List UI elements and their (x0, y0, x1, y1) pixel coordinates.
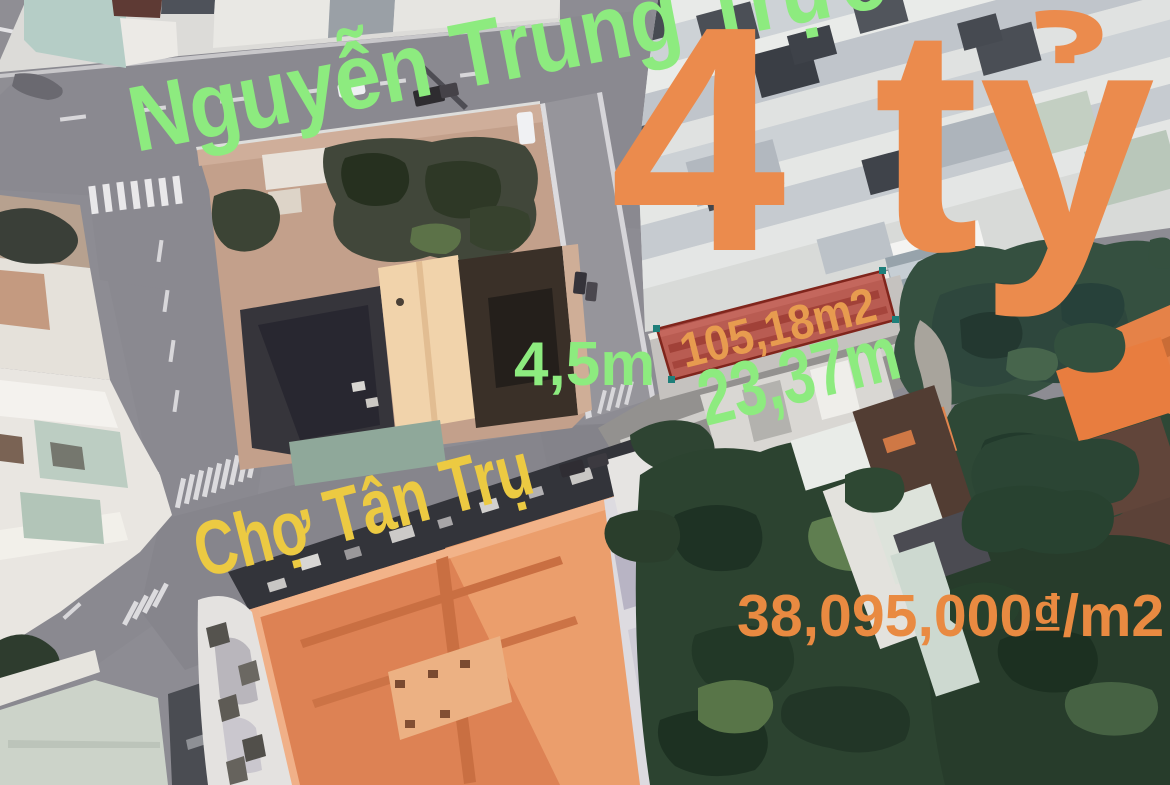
svg-text:4,5m: 4,5m (514, 330, 655, 399)
svg-text:4 tỷ: 4 tỷ (610, 0, 1157, 320)
svg-text:38,095,000₫/m2: 38,095,000₫/m2 (737, 583, 1164, 649)
